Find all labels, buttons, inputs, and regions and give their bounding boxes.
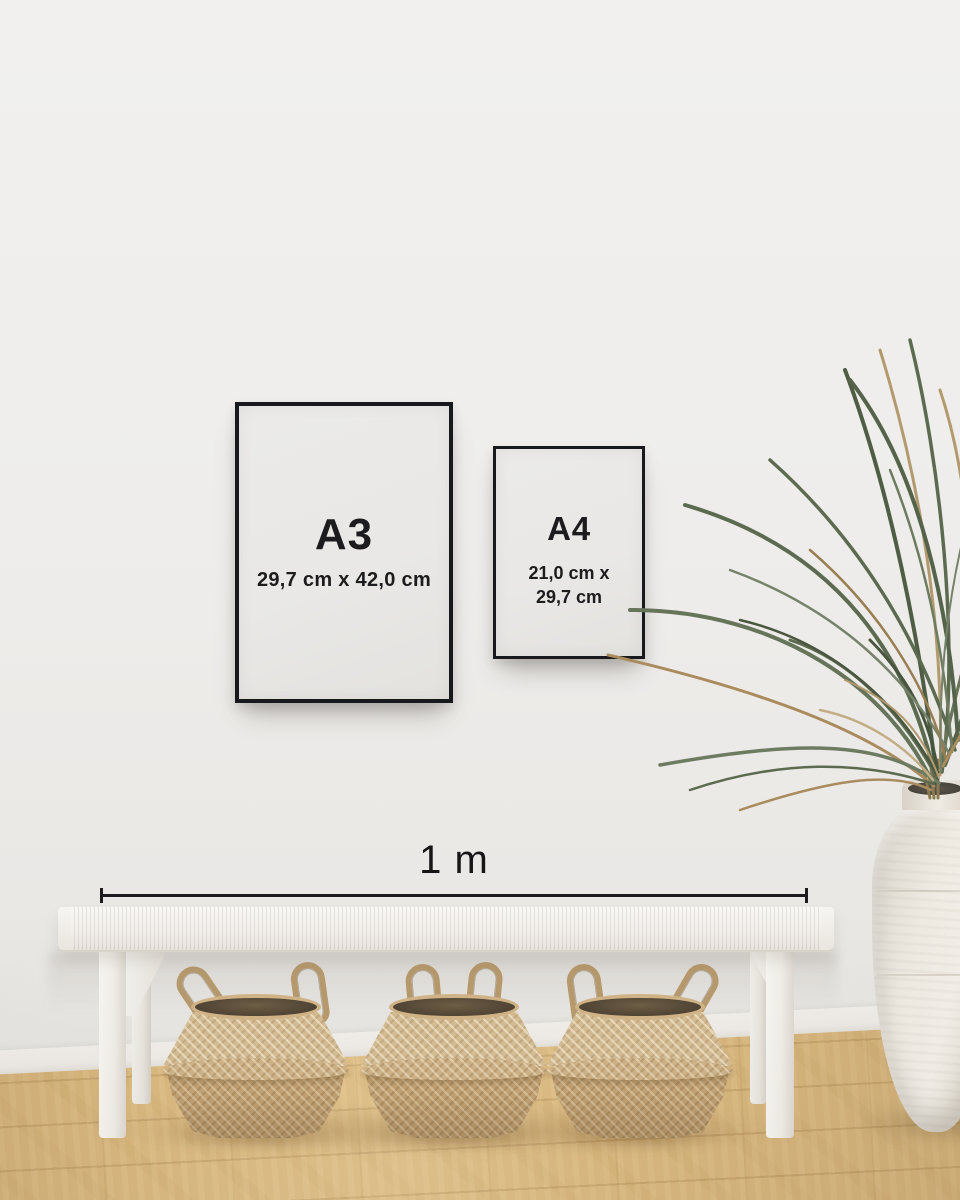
room-scene: A3 29,7 cm x 42,0 cm A4 21,0 cm x 29,7 c… — [0, 0, 960, 1200]
bench-leg-front-left — [99, 946, 126, 1138]
floor-vase — [872, 780, 960, 1132]
bench-seat — [58, 907, 834, 952]
scale-bar-tick-right — [805, 888, 808, 903]
seagrass-basket — [547, 962, 733, 1138]
basket-ridge — [163, 1058, 349, 1080]
frame-a3-dimensions: 29,7 cm x 42,0 cm — [257, 569, 431, 592]
basket-base — [361, 1070, 547, 1138]
scale-bar: 1 m — [100, 840, 808, 897]
frame-a3: A3 29,7 cm x 42,0 cm — [235, 402, 453, 703]
vase-body — [872, 798, 960, 1132]
basket-base — [547, 1070, 733, 1138]
basket-rim — [191, 994, 321, 1020]
scale-bar-line — [100, 894, 808, 897]
scale-bar-label: 1 m — [100, 840, 808, 880]
frame-a3-label: A3 — [315, 513, 373, 557]
scale-bar-tick-left — [100, 888, 103, 903]
palm-plant — [590, 310, 960, 820]
bench-leg-front-right — [766, 944, 794, 1138]
basket-ridge — [361, 1058, 547, 1080]
basket-rim — [389, 994, 519, 1020]
seagrass-basket — [361, 962, 547, 1138]
basket-base — [163, 1070, 349, 1138]
basket-rim — [575, 994, 705, 1020]
seagrass-basket — [163, 962, 349, 1138]
basket-ridge — [547, 1058, 733, 1080]
vase-ridge — [876, 890, 960, 892]
frame-a4-label: A4 — [547, 512, 591, 545]
vase-ridge — [876, 974, 960, 976]
